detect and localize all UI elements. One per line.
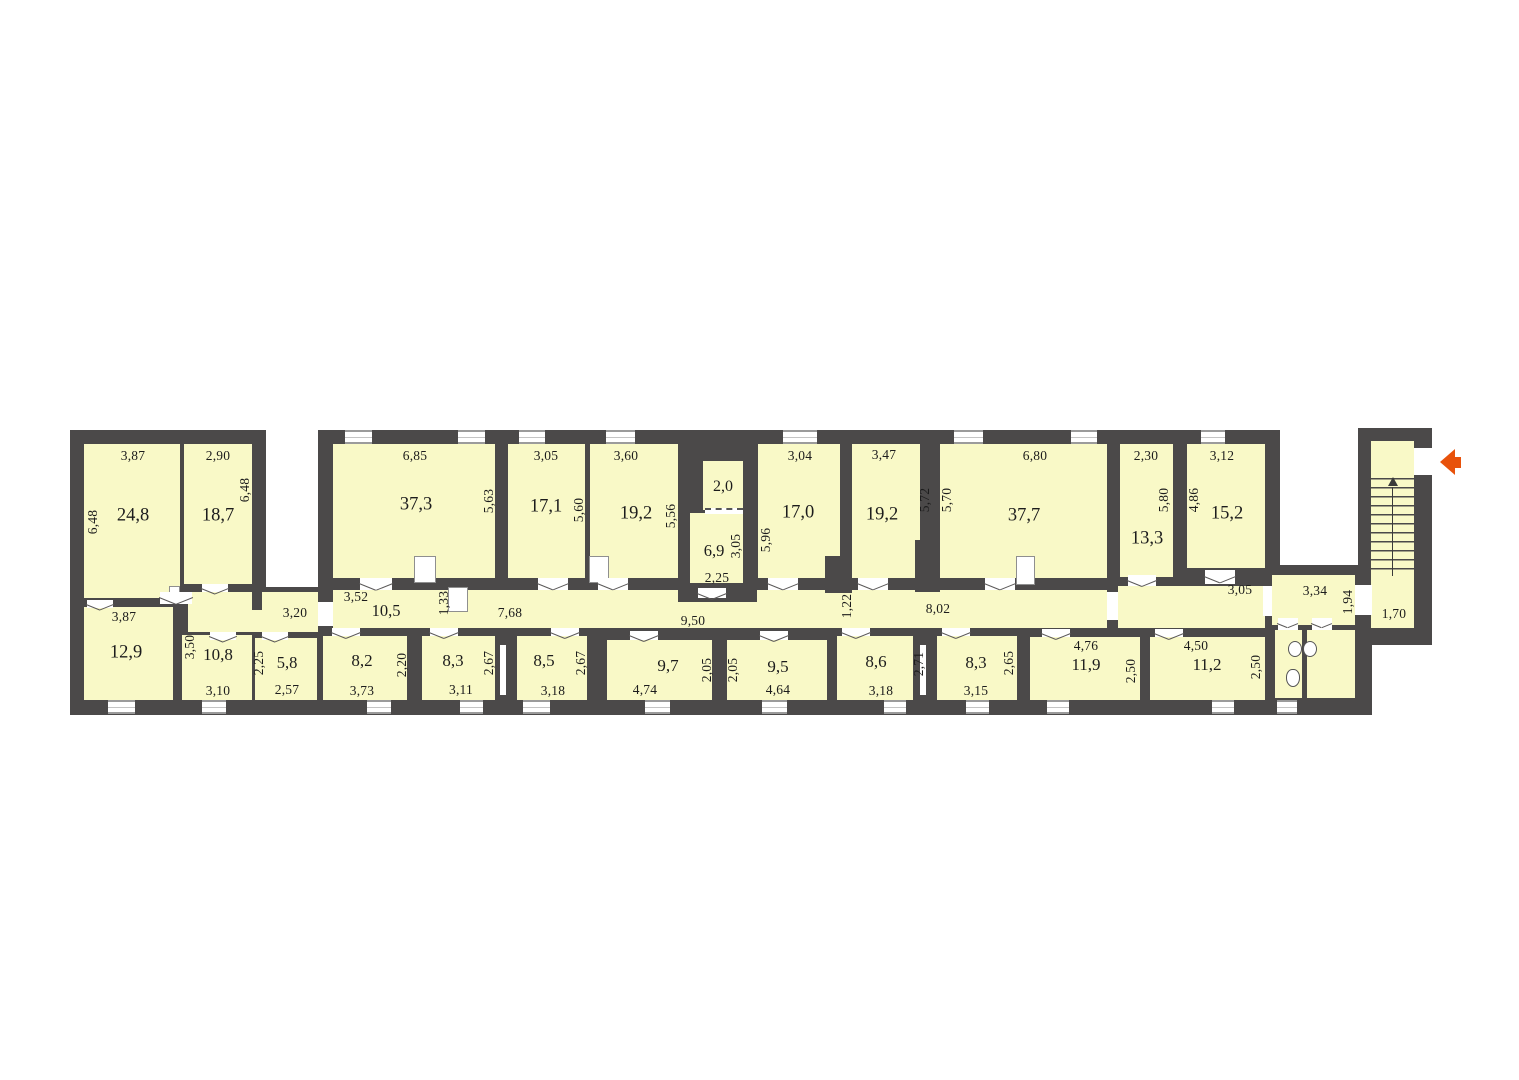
- door-6-9: [698, 588, 726, 598]
- corridor-link-pass: [252, 610, 262, 632]
- room-area: 6,9: [704, 541, 725, 561]
- opening-2-0-6-9: [705, 508, 743, 514]
- dim: 2,67: [573, 651, 589, 675]
- sink-icon: [1303, 641, 1317, 657]
- dim: 3,87: [112, 609, 136, 625]
- dim: 1,94: [1340, 590, 1356, 614]
- door-hall-stair: [1355, 585, 1372, 615]
- dim: 4,76: [1074, 638, 1098, 654]
- door-11-9: [1042, 629, 1070, 637]
- window: [345, 430, 372, 444]
- room-area: 17,0: [782, 503, 814, 524]
- door-17-0: [768, 578, 798, 590]
- door-11-2: [1155, 629, 1183, 637]
- window: [1212, 700, 1234, 714]
- dim: 2,05: [725, 658, 741, 682]
- door-wc-left: [1278, 618, 1298, 630]
- dim: 3,52: [344, 589, 368, 605]
- window: [460, 700, 483, 714]
- door-37-7: [985, 578, 1015, 590]
- room-area: 19,2: [866, 505, 898, 526]
- toilet-icon: [1286, 669, 1300, 687]
- window: [966, 700, 989, 714]
- dim: 3,87: [121, 448, 145, 464]
- entry-arrow-tail: [1454, 457, 1461, 468]
- dim: 3,18: [869, 683, 893, 699]
- corridor-left: [188, 592, 252, 632]
- dim: 3,50: [182, 635, 198, 659]
- wc-right: [1307, 630, 1355, 698]
- door-hall-corridor: [1263, 586, 1272, 616]
- room-area: 8,3: [965, 653, 986, 673]
- room-area: 11,9: [1071, 655, 1100, 675]
- dim: 5,56: [663, 504, 679, 528]
- room-area: 9,5: [767, 657, 788, 677]
- room-area: 8,5: [533, 651, 554, 671]
- dim: 3,20: [283, 605, 307, 621]
- door-17-1: [538, 578, 568, 590]
- dim: 5,72: [917, 488, 933, 512]
- dim: 3,73: [350, 683, 374, 699]
- door-8-6: [842, 628, 870, 636]
- window: [458, 430, 485, 444]
- wc-left: [1275, 630, 1302, 698]
- dim: 8,02: [926, 601, 950, 617]
- door-19-2-b: [858, 578, 888, 590]
- dim: 5,70: [939, 488, 955, 512]
- room-area: 37,7: [1008, 506, 1040, 527]
- entry-arrow-icon: [1440, 449, 1455, 475]
- dim: 3,05: [1228, 582, 1252, 598]
- dim: 3,15: [964, 683, 988, 699]
- dim: 3,18: [541, 683, 565, 699]
- dim: 3,10: [206, 683, 230, 699]
- room-area: 9,7: [657, 656, 678, 676]
- door-9-7: [630, 631, 658, 640]
- door-8-2: [332, 628, 360, 636]
- wall-pillar-37-7: [915, 540, 940, 592]
- sink-icon: [1288, 641, 1302, 657]
- dim: 9,50: [681, 613, 705, 629]
- window: [606, 430, 635, 444]
- window: [1201, 430, 1225, 444]
- window: [519, 430, 545, 444]
- room-area: 8,6: [865, 652, 886, 672]
- dim: 1,70: [1382, 606, 1406, 622]
- dim: 2,20: [394, 653, 410, 677]
- dim: 2,50: [1248, 655, 1264, 679]
- dim: 3,05: [728, 534, 744, 558]
- dim: 7,68: [498, 605, 522, 621]
- door-8-5: [551, 628, 579, 636]
- dim: 4,74: [633, 682, 657, 698]
- dim: 2,71: [911, 652, 927, 676]
- door-building-entry: [1414, 448, 1432, 475]
- dim: 5,96: [758, 528, 774, 552]
- dim: 2,30: [1134, 448, 1158, 464]
- dim: 5,80: [1156, 488, 1172, 512]
- window: [523, 700, 550, 714]
- door-8-3-b: [942, 628, 970, 636]
- room-area: 24,8: [117, 506, 149, 527]
- room-area: 37,3: [400, 495, 432, 516]
- room-area: 10,5: [372, 601, 401, 621]
- door-wc-right: [1312, 618, 1332, 630]
- dim: 2,65: [1001, 651, 1017, 675]
- door-9-5: [760, 631, 788, 640]
- window: [783, 430, 817, 444]
- dim: 4,86: [1186, 488, 1202, 512]
- dim: 2,25: [251, 651, 267, 675]
- room-area: 5,8: [277, 653, 298, 673]
- dim: 3,12: [1210, 448, 1234, 464]
- window: [108, 700, 135, 714]
- dim: 5,63: [481, 489, 497, 513]
- room-area: 11,2: [1192, 655, 1221, 675]
- room-area: 13,3: [1131, 529, 1163, 550]
- stair-center-line: [1392, 487, 1393, 576]
- wall-stub-17-0: [825, 556, 852, 593]
- dim: 2,57: [275, 682, 299, 698]
- room-area: 10,8: [203, 645, 233, 665]
- door-corridor-link: [318, 602, 333, 626]
- dim: 4,50: [1184, 638, 1208, 654]
- dim: 4,64: [766, 682, 790, 698]
- duct-slit-a: [500, 645, 506, 695]
- window: [367, 700, 391, 714]
- door-19-2-a: [598, 578, 628, 590]
- dim: 3,05: [534, 448, 558, 464]
- door-13-3: [1128, 575, 1156, 586]
- dim: 3,11: [449, 682, 473, 698]
- window: [884, 700, 906, 714]
- dim: 6,80: [1023, 448, 1047, 464]
- door-8-3-a: [430, 628, 458, 636]
- dim: 6,85: [403, 448, 427, 464]
- room-area: 15,2: [1211, 504, 1243, 525]
- dim: 2,90: [206, 448, 230, 464]
- niche-37-3: [414, 556, 436, 583]
- room-area: 19,2: [620, 504, 652, 525]
- dim: 3,47: [872, 447, 896, 463]
- dim: 5,60: [571, 498, 587, 522]
- door-12-9: [87, 600, 113, 608]
- dim: 1,33: [436, 591, 452, 615]
- dim: 2,67: [481, 651, 497, 675]
- window: [1071, 430, 1097, 444]
- door-corridor-right: [1107, 592, 1118, 620]
- window: [1277, 700, 1297, 714]
- stair-up-arrow-icon: [1388, 477, 1398, 486]
- window: [1047, 700, 1069, 714]
- dim: 2,05: [699, 658, 715, 682]
- door-10-8: [210, 632, 236, 640]
- dim: 3,60: [614, 448, 638, 464]
- niche-37-7: [1016, 556, 1035, 585]
- dim: 2,25: [705, 570, 729, 586]
- door-24-8: [160, 592, 192, 604]
- window: [202, 700, 226, 714]
- dim: 2,50: [1123, 659, 1139, 683]
- door-18-7: [202, 584, 228, 592]
- room-area: 12,9: [110, 643, 142, 664]
- dim: 6,48: [237, 478, 253, 502]
- dim: 3,34: [1303, 583, 1327, 599]
- floor-plan: 3,87 2,90 6,85 3,05 3,60 3,04 3,47 6,80 …: [0, 0, 1519, 1080]
- window: [645, 700, 670, 714]
- dim: 3,04: [788, 448, 812, 464]
- room-area: 17,1: [530, 497, 562, 518]
- dim: 1,22: [839, 594, 855, 618]
- room-area: 8,2: [351, 651, 372, 671]
- room-area: 8,3: [442, 651, 463, 671]
- dim: 6,48: [85, 510, 101, 534]
- room-area: 2,0: [713, 478, 733, 496]
- room-area: 18,7: [202, 506, 234, 527]
- window: [954, 430, 983, 444]
- window: [762, 700, 787, 714]
- door-5-8: [262, 632, 288, 640]
